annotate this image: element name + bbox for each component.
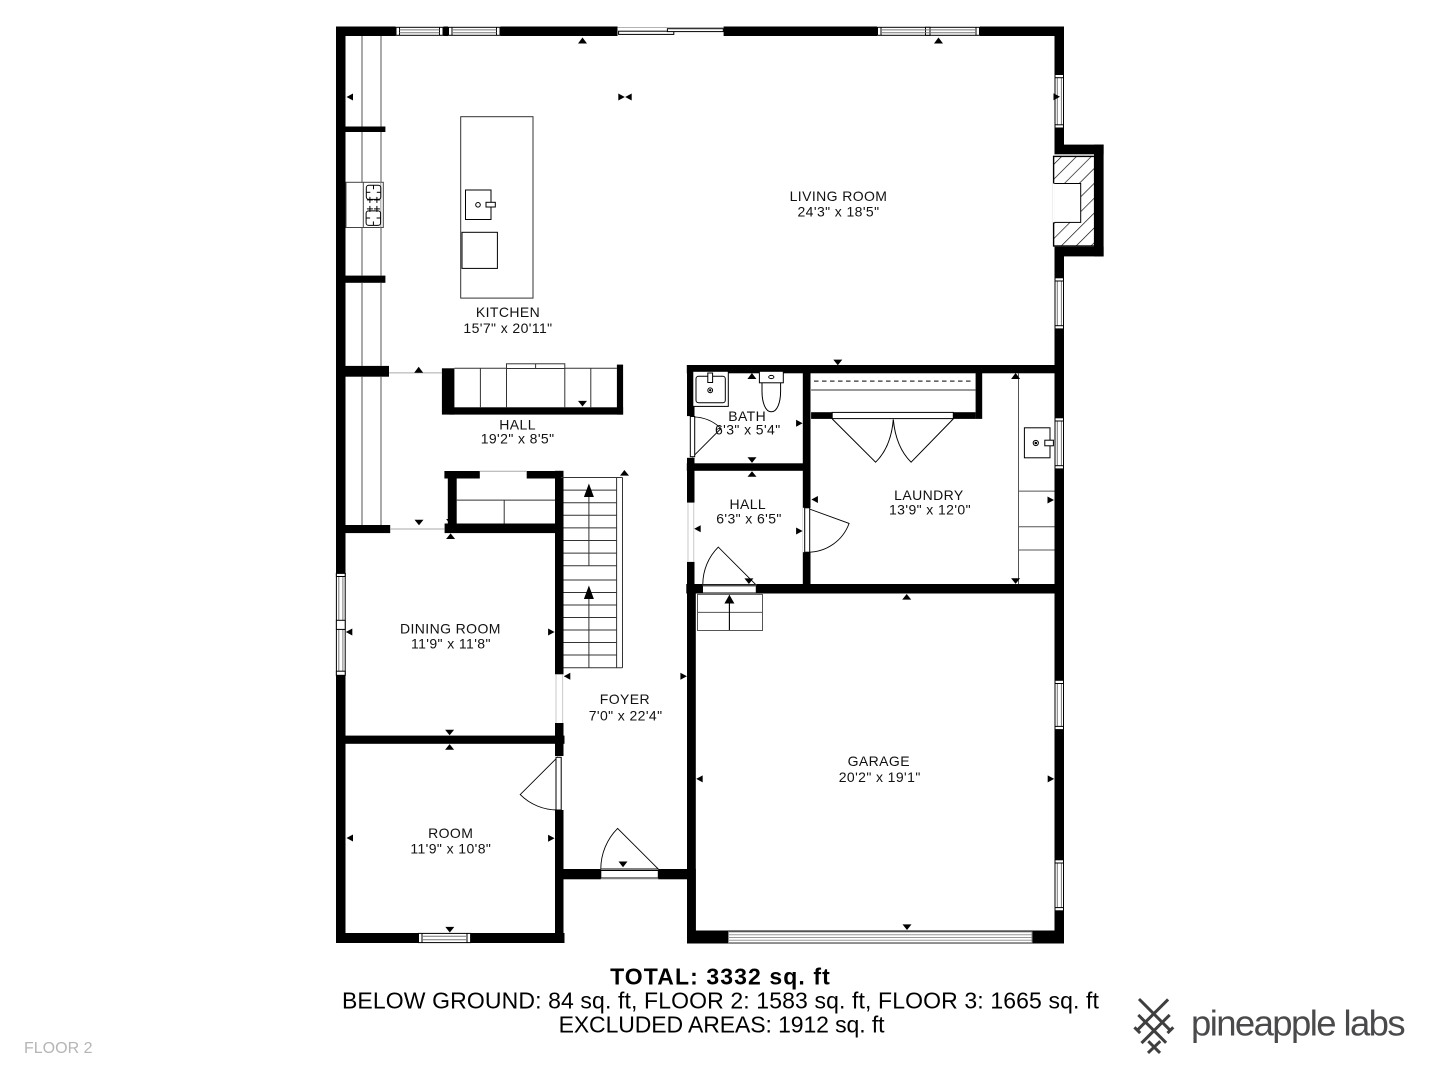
svg-text:EXCLUDED AREAS: 1912 sq. ft: EXCLUDED AREAS: 1912 sq. ft <box>559 1012 886 1038</box>
svg-text:6'3" x 6'5": 6'3" x 6'5" <box>716 511 782 527</box>
svg-text:7'0" x 22'4": 7'0" x 22'4" <box>589 708 663 724</box>
svg-text:6'3" x 5'4": 6'3" x 5'4" <box>715 422 781 438</box>
svg-text:FLOOR 2: FLOOR 2 <box>24 1040 93 1057</box>
svg-text:24'3" x 18'5": 24'3" x 18'5" <box>798 203 880 219</box>
svg-text:13'9" x 12'0": 13'9" x 12'0" <box>889 502 971 518</box>
svg-text:DINING ROOM: DINING ROOM <box>400 621 501 637</box>
svg-text:ROOM: ROOM <box>428 825 473 841</box>
svg-text:BELOW GROUND: 84 sq. ft, FLOOR: BELOW GROUND: 84 sq. ft, FLOOR 2: 1583 s… <box>342 988 1100 1014</box>
svg-text:19'2" x 8'5": 19'2" x 8'5" <box>481 431 555 447</box>
svg-text:11'9" x 11'8": 11'9" x 11'8" <box>411 636 491 652</box>
svg-text:15'7" x 20'11": 15'7" x 20'11" <box>463 320 552 336</box>
svg-text:TOTAL: 3332 sq. ft: TOTAL: 3332 sq. ft <box>610 964 831 990</box>
svg-text:GARAGE: GARAGE <box>848 753 910 769</box>
svg-text:FOYER: FOYER <box>600 691 650 707</box>
svg-text:11'9" x 10'8": 11'9" x 10'8" <box>410 841 491 857</box>
svg-text:20'2" x 19'1": 20'2" x 19'1" <box>839 769 921 785</box>
svg-text:HALL: HALL <box>729 496 766 512</box>
svg-text:pineapple labs: pineapple labs <box>1191 1003 1404 1044</box>
svg-text:LIVING ROOM: LIVING ROOM <box>790 188 888 204</box>
svg-text:KITCHEN: KITCHEN <box>476 304 540 320</box>
